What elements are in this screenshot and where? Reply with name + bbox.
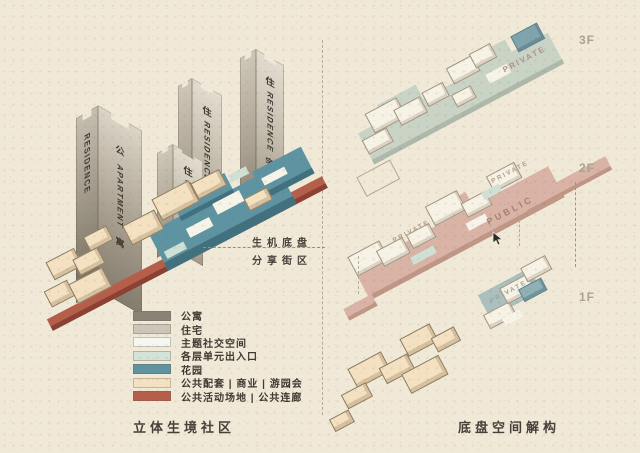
legend-swatch-residence [133,324,171,334]
legend-row: 各层单元出入口 [133,349,303,362]
iso-box [329,409,355,432]
legend-swatch-entrances [133,351,171,361]
tower-latin-label: RESIDENCE [83,131,92,196]
tower-cjk-top: 住 [265,72,274,90]
legend-row: 公共配套 | 商业 | 游园会 [133,376,303,389]
legend-row: 公共活动场地 | 公共连廊 [133,389,303,402]
mouse-cursor-icon [492,231,504,247]
level-connector-dashed [519,220,520,246]
annotation-line2: 分享街区 [252,252,312,267]
annotation-dashed-line [203,247,325,248]
level-connector-dashed [358,256,359,294]
tower-cjk-top: 住 [202,102,211,120]
iso-box [341,382,373,409]
legend-swatch-apartment [133,311,171,321]
panel-divider-dashed-line [322,40,323,415]
iso-box [431,326,461,352]
tower-cjk-bottom: 寓 [115,233,124,251]
legend-swatch-garden [133,364,171,374]
floor-label-3f: 3F [579,33,595,47]
legend-swatch-public-grounds [133,391,171,401]
legend-row: 花园 [133,363,303,376]
left-caption: 立体生境社区 [133,417,235,436]
legend-row: 公寓 [133,309,303,322]
slab-2f-tail [343,294,377,321]
right-caption: 底盘空间解构 [458,417,560,436]
legend-row: 主题社交空间 [133,336,303,349]
level-connector-dashed-red [575,182,576,267]
floor-label-2f: 2F [579,161,595,175]
legend-label: 公共活动场地 | 公共连廊 [181,389,302,404]
tower-latin-label: APARTMENT [115,162,124,230]
legend-swatch-amenities [133,378,171,388]
tower-cjk-top: 公 [115,141,124,159]
floor-label-1f: 1F [579,290,595,304]
poster-canvas: { "left_diagram": { "caption": "立体生境社区",… [0,0,640,453]
outline-box [356,160,400,197]
tower-cjk-top: 住 [183,162,192,180]
legend: 公寓 住宅 主题社交空间 各层单元出入口 花园 公共配套 | 商业 | 游园会 … [133,309,303,403]
legend-swatch-social-space [133,337,171,347]
legend-row: 住宅 [133,322,303,335]
tower-latin-label: RESIDENCE [265,89,274,154]
